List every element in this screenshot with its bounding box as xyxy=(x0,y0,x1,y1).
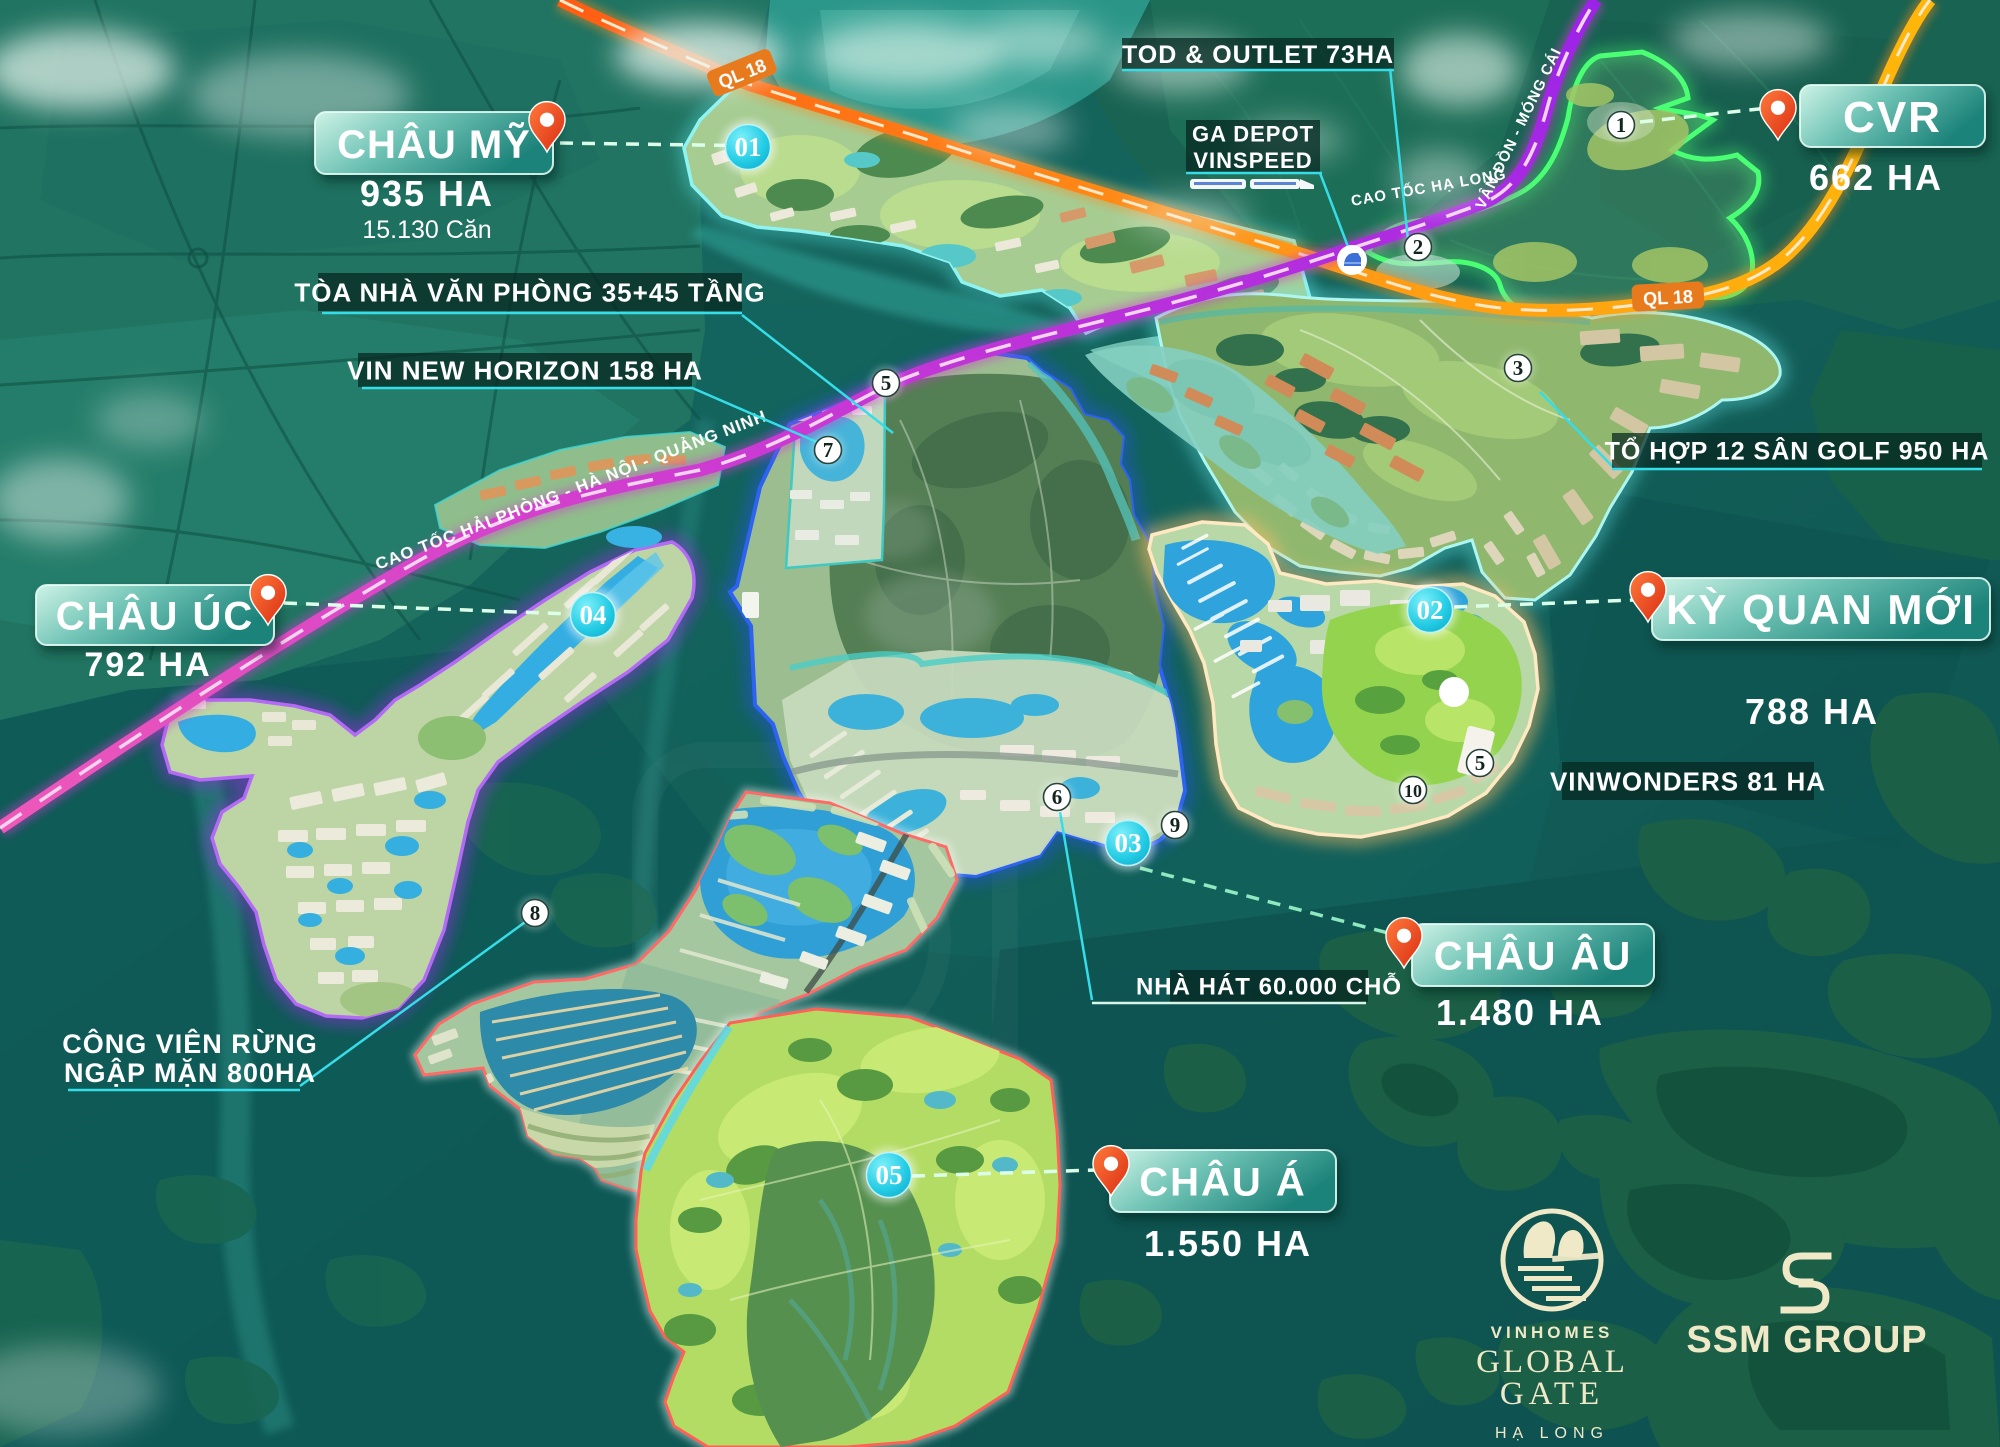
svg-text:QL 18: QL 18 xyxy=(1643,287,1694,310)
svg-text:03: 03 xyxy=(1115,828,1142,858)
svg-text:10: 10 xyxy=(1404,781,1422,801)
svg-text:SSM GROUP: SSM GROUP xyxy=(1686,1319,1927,1361)
svg-text:VIN NEW HORIZON 158 HA: VIN NEW HORIZON 158 HA xyxy=(347,355,703,385)
svg-text:CHÂU ÚC: CHÂU ÚC xyxy=(56,592,254,638)
svg-text:GA DEPOT: GA DEPOT xyxy=(1192,121,1314,146)
svg-text:GATE: GATE xyxy=(1500,1376,1604,1412)
svg-text:VINHOMES: VINHOMES xyxy=(1491,1323,1614,1342)
svg-text:662 HA: 662 HA xyxy=(1809,157,1943,198)
svg-text:GLOBAL: GLOBAL xyxy=(1476,1344,1628,1380)
svg-text:1.480 HA: 1.480 HA xyxy=(1436,992,1604,1033)
svg-text:5: 5 xyxy=(1475,751,1486,775)
svg-text:TỔ HỢP 12 SÂN GOLF 950 HA: TỔ HỢP 12 SÂN GOLF 950 HA xyxy=(1605,436,1990,466)
svg-text:3: 3 xyxy=(1513,356,1524,380)
svg-text:15.130 Căn: 15.130 Căn xyxy=(362,216,491,244)
svg-text:9: 9 xyxy=(1170,813,1181,837)
svg-text:HẠ LONG: HẠ LONG xyxy=(1495,1425,1609,1442)
svg-text:VINWONDERS 81 HA: VINWONDERS 81 HA xyxy=(1550,766,1826,796)
svg-text:05: 05 xyxy=(876,1160,903,1190)
svg-text:935 HA: 935 HA xyxy=(360,173,494,214)
svg-text:1: 1 xyxy=(1616,113,1627,137)
svg-text:CHÂU ÂU: CHÂU ÂU xyxy=(1434,932,1632,978)
svg-text:792 HA: 792 HA xyxy=(84,646,211,684)
svg-text:NGẬP MẶN 800HA: NGẬP MẶN 800HA xyxy=(64,1057,316,1088)
svg-text:CHÂU Á: CHÂU Á xyxy=(1139,1158,1307,1204)
svg-text:CÔNG VIÊN RỪNG: CÔNG VIÊN RỪNG xyxy=(62,1028,317,1059)
svg-text:NHÀ HÁT 60.000 CHỖ: NHÀ HÁT 60.000 CHỖ xyxy=(1136,972,1402,1001)
svg-text:VINSPEED: VINSPEED xyxy=(1193,148,1312,173)
svg-text:2: 2 xyxy=(1413,235,1424,259)
svg-text:02: 02 xyxy=(1417,595,1444,625)
svg-text:TOD & OUTLET 73HA: TOD & OUTLET 73HA xyxy=(1122,41,1394,69)
svg-text:8: 8 xyxy=(530,901,541,925)
svg-text:TÒA NHÀ VĂN PHÒNG 35+45 TẦNG: TÒA NHÀ VĂN PHÒNG 35+45 TẦNG xyxy=(294,277,765,307)
svg-text:6: 6 xyxy=(1052,785,1063,809)
svg-text:CVR: CVR xyxy=(1843,93,1942,142)
svg-text:CHÂU MỸ: CHÂU MỸ xyxy=(337,121,531,167)
svg-text:7: 7 xyxy=(823,438,834,462)
svg-text:01: 01 xyxy=(735,132,762,162)
svg-text:KỲ QUAN MỚI: KỲ QUAN MỚI xyxy=(1666,585,1976,633)
svg-text:5: 5 xyxy=(881,371,892,395)
svg-text:04: 04 xyxy=(580,600,607,630)
svg-text:788 HA: 788 HA xyxy=(1745,691,1879,732)
svg-text:1.550 HA: 1.550 HA xyxy=(1144,1223,1312,1264)
